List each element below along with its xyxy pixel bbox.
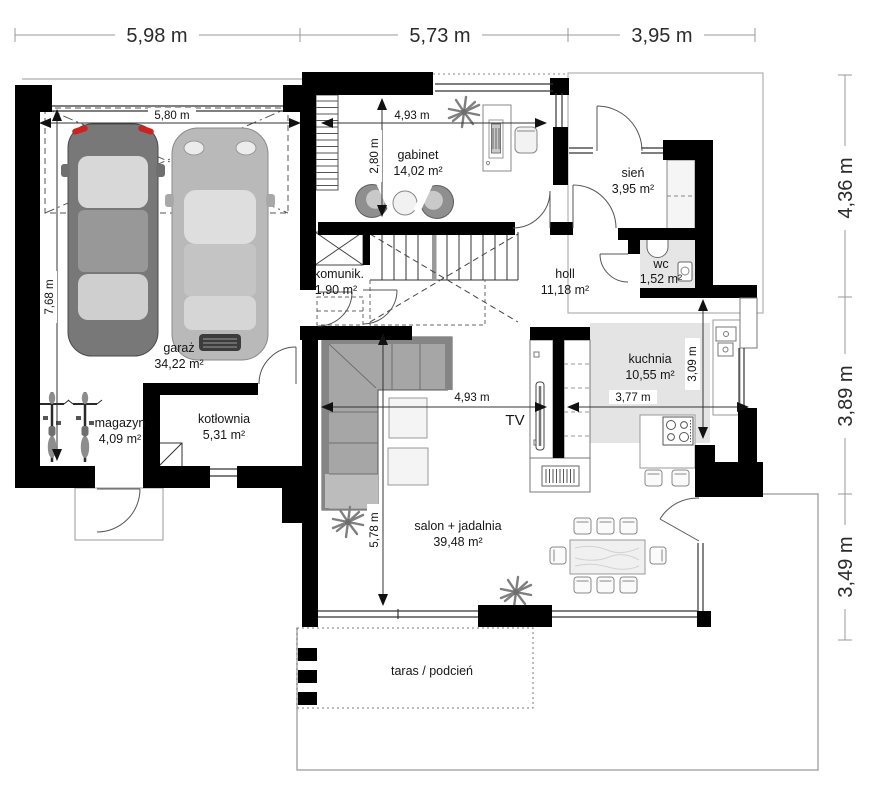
room-area-kotlownia: 5,31 m²	[203, 428, 245, 442]
dim-garage-width: 5,80 m	[154, 110, 189, 122]
gabinet-side-table	[393, 191, 417, 215]
dim-top-2: 5,73 m	[409, 25, 470, 47]
dim-salon-width: 4,93 m	[454, 392, 489, 404]
dim-right-3: 3,49 m	[835, 536, 857, 597]
dim-kitchen-width: 3,77 m	[615, 392, 650, 404]
room-label-sien: sień	[622, 166, 645, 180]
boiler-icon	[158, 443, 182, 467]
dim-garage-depth: 7,68 m	[44, 279, 56, 314]
dim-salon-depth: 5,78 m	[369, 512, 381, 547]
corner-sofa	[322, 337, 452, 510]
dim-right-2: 3,89 m	[835, 365, 857, 426]
wall-ladder-hatch	[316, 95, 338, 190]
room-label-magazyn: magazyn	[95, 416, 146, 430]
room-label-kotlownia: kotłownia	[198, 412, 250, 426]
coffee-tables	[388, 398, 428, 485]
sien-wardrobe	[667, 160, 695, 238]
terrace-steps	[298, 648, 317, 705]
dim-right-1: 4,36 m	[835, 157, 857, 218]
bicycle-icons	[35, 392, 102, 462]
room-label-holl: holl	[555, 267, 574, 281]
fireplace	[530, 458, 590, 492]
room-area-salon: 39,48 m²	[433, 535, 482, 549]
car-dark	[61, 124, 165, 356]
room-area-sien: 3,95 m²	[612, 182, 654, 196]
gabinet-armchairs	[350, 178, 459, 224]
room-area-holl: 11,18 m²	[541, 283, 589, 297]
room-label-gabinet: gabinet	[397, 148, 439, 162]
room-label-kuchnia: kuchnia	[628, 352, 671, 366]
dim-gabinet-depth: 2,80 m	[369, 138, 381, 173]
magazyn-door-landing	[75, 488, 163, 540]
room-area-wc: 1,52 m²	[640, 272, 682, 286]
floor-plan-canvas: 5,98 m 5,73 m 3,95 m 4,36 m 3,89 m 3,49 …	[0, 0, 875, 792]
room-label-salon: salon + jadalnia	[414, 519, 501, 533]
room-label-garaz: garaż	[163, 341, 194, 355]
room-area-garaz: 34,22 m²	[154, 357, 203, 371]
dim-gabinet-width: 4,93 m	[394, 110, 429, 122]
office-desk	[483, 105, 537, 171]
room-area-gabinet: 14,02 m²	[393, 164, 442, 178]
dim-top-3: 3,95 m	[631, 25, 692, 47]
wall-thin-segment	[740, 298, 757, 348]
dining-set	[550, 518, 666, 593]
room-label-wc: wc	[652, 257, 668, 271]
plant-icon	[501, 577, 531, 607]
tv-label: TV	[505, 412, 524, 429]
room-label-komunik: komunik.	[314, 267, 364, 281]
car-light	[165, 128, 275, 360]
dim-top-1: 5,98 m	[126, 25, 187, 47]
room-label-taras: taras / podcień	[391, 664, 473, 678]
staircase	[370, 232, 518, 325]
room-area-magazyn: 4,09 m²	[99, 432, 141, 446]
floor-plan-page: 5,98 m 5,73 m 3,95 m 4,36 m 3,89 m 3,49 …	[0, 0, 875, 792]
room-area-kuchnia: 10,55 m²	[625, 368, 674, 382]
room-area-komunik: 1,90 m²	[315, 283, 357, 297]
dim-kitchen-depth: 3,09 m	[687, 346, 699, 381]
plant-icon	[333, 507, 363, 537]
